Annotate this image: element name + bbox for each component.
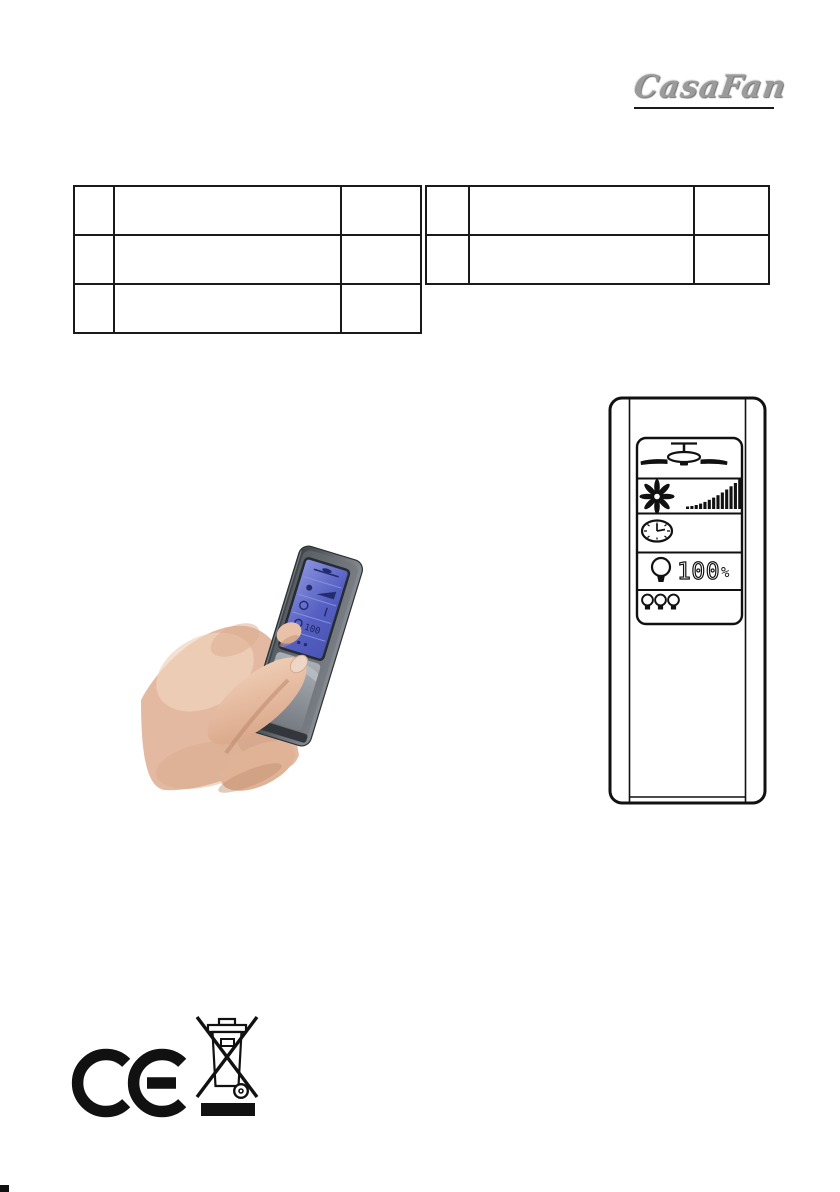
hand-holding-remote-photo: 100 <box>138 523 408 815</box>
weee-bin-icon <box>190 1012 265 1122</box>
table-cell <box>114 235 341 284</box>
table-cell <box>74 186 114 235</box>
logo-underline <box>634 107 774 109</box>
table-cell <box>74 284 114 333</box>
table-cell <box>426 186 469 235</box>
table-cell <box>341 284 421 333</box>
table-cell <box>426 235 469 284</box>
table-cell <box>469 235 694 284</box>
three-bulbs-icon <box>642 595 679 610</box>
table-cell <box>341 186 421 235</box>
fan-blades-icon <box>640 479 675 514</box>
page-corner-mark <box>0 1185 9 1192</box>
table-left <box>73 185 422 334</box>
light-level-value: 100 <box>677 559 720 585</box>
remote-diagram: 100 % <box>605 394 771 808</box>
casafan-logo-text: CasaFan <box>631 68 776 106</box>
lcd-display-outline <box>637 438 742 624</box>
table-cell <box>114 284 341 333</box>
table-cell <box>694 186 769 235</box>
casafan-logo: CasaFan <box>634 68 774 109</box>
ce-mark-icon <box>60 1040 210 1130</box>
table-cell <box>74 235 114 284</box>
weee-bar <box>201 1103 255 1116</box>
document-page: CasaFan <box>0 0 840 1192</box>
light-level-unit: % <box>721 565 730 581</box>
table-cell <box>114 186 341 235</box>
table-cell <box>341 235 421 284</box>
table-cell <box>469 186 694 235</box>
clock-icon <box>642 521 672 542</box>
table-cell <box>694 235 769 284</box>
table-right <box>425 185 770 285</box>
